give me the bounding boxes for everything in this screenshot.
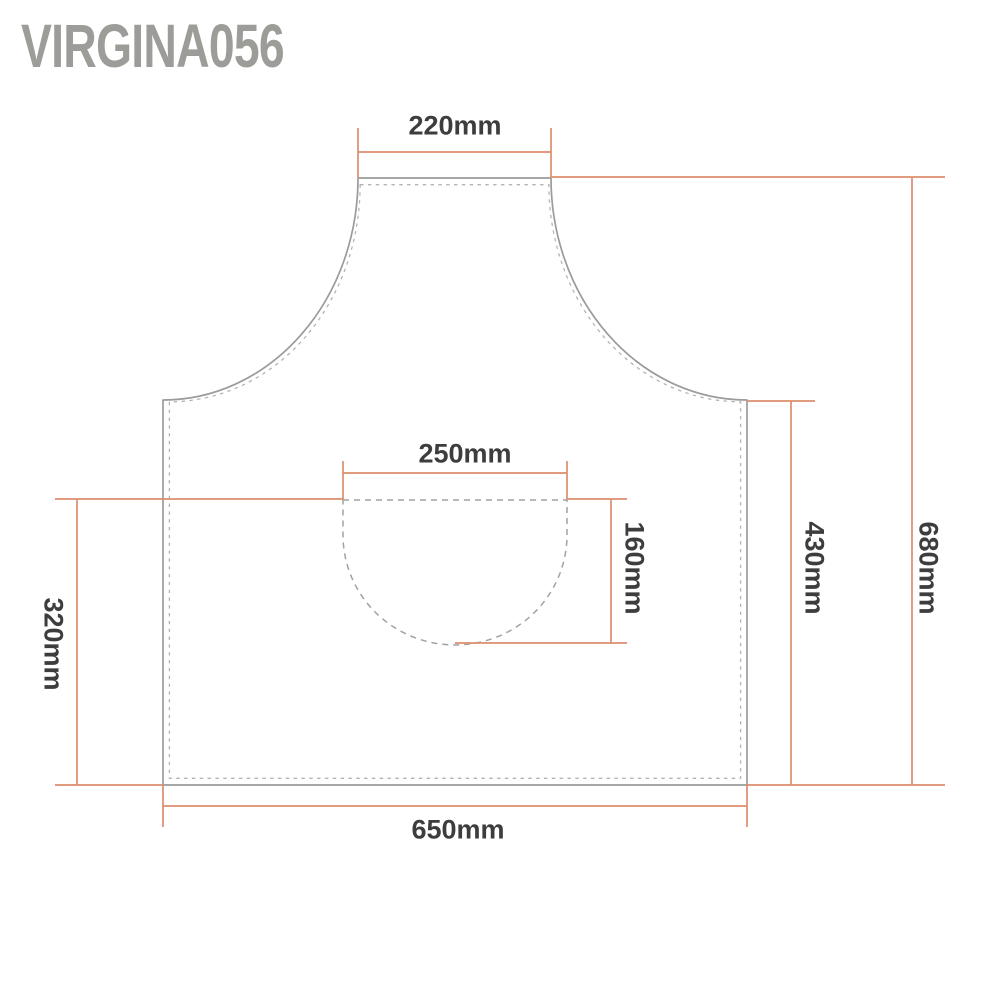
apron-outline	[163, 178, 747, 785]
dim-lines-total-height	[551, 177, 945, 785]
apron-stitch-line	[169, 185, 740, 779]
dim-label-side-height: 430mm	[799, 521, 830, 614]
dim-lines-pocket-height	[455, 499, 627, 643]
dim-label-pocket-height: 160mm	[619, 521, 650, 614]
dim-label-total-height: 680mm	[913, 521, 944, 614]
dimension-lines	[55, 128, 945, 827]
dim-label-pocket-width: 250mm	[418, 439, 511, 470]
dim-label-lower-height: 320mm	[38, 597, 69, 690]
watermark-text: Virgina056	[21, 16, 284, 77]
dim-lines-lower-height	[55, 499, 343, 785]
diagram-canvas	[0, 0, 1001, 1001]
dim-label-bottom-width: 650mm	[411, 815, 504, 846]
apron-dimension-diagram: Virgina056 220mm 250mm 160mm 320mm 430mm…	[0, 0, 1001, 1001]
dim-label-top-width: 220mm	[408, 111, 501, 142]
pocket-outline	[343, 500, 567, 645]
